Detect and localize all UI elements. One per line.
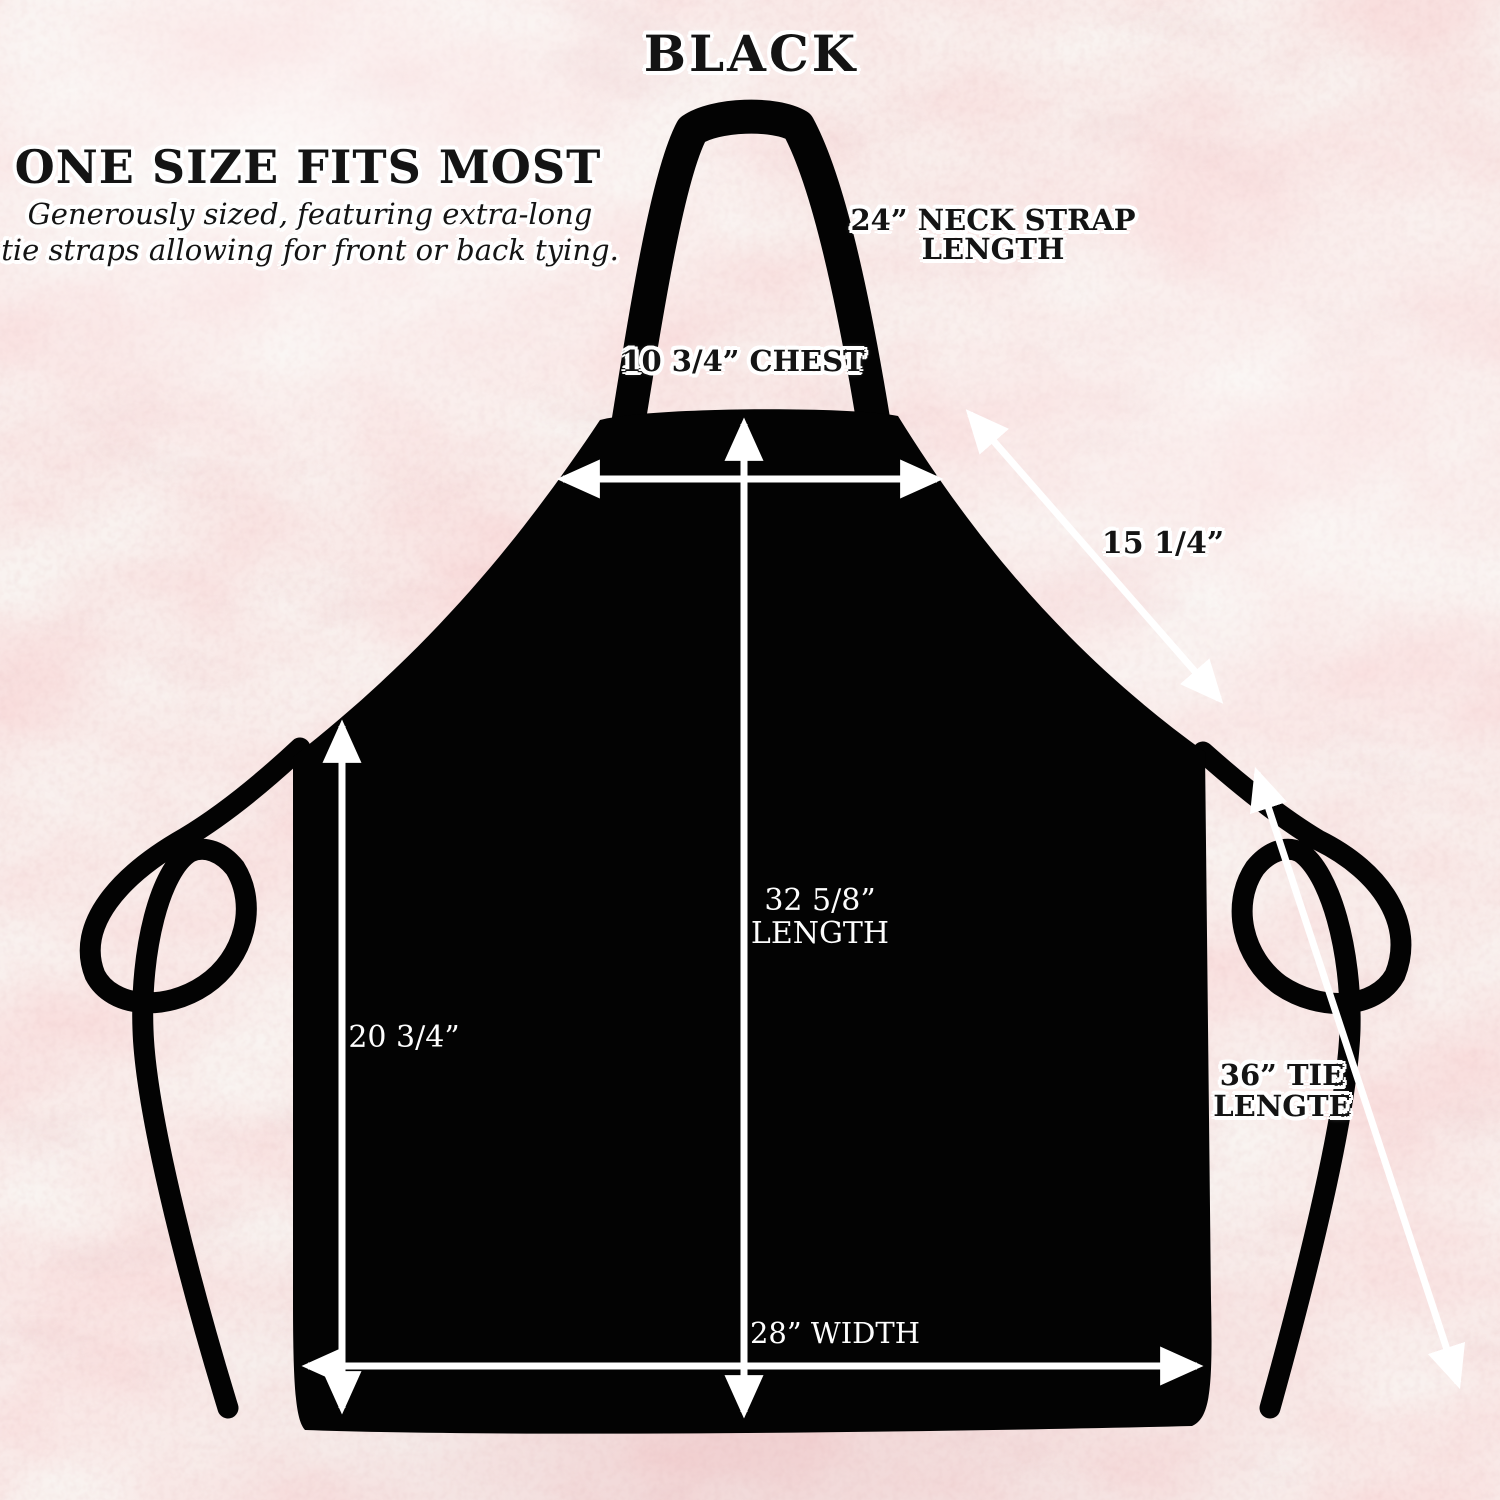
subtitle-line-1: Generously sized, featuring extra-long (28, 197, 593, 231)
length-measurement: 32 5/8” LENGTH (751, 884, 889, 950)
left-tie-strap (90, 748, 300, 1408)
tie-line-1: 36” TIE (1220, 1058, 1344, 1092)
one-size-subtitle: Generously sized, featuring extra-long t… (1, 196, 619, 268)
width-measurement: 28” WIDTH (750, 1316, 920, 1350)
length-line-2: LENGTH (751, 916, 889, 951)
shoulder-diagonal-measurement: 15 1/4” (1102, 526, 1224, 561)
apron-size-chart: BLACK ONE SIZE FITS MOST Generously size… (0, 0, 1500, 1500)
tie-line-2: LENGTE (1213, 1089, 1350, 1123)
neck-strap-measurement: 24” NECK STRAP LENGTH (850, 206, 1135, 264)
color-title: BLACK (644, 24, 858, 83)
subtitle-line-2: tie straps allowing for front or back ty… (1, 233, 619, 267)
side-length-measurement: 20 3/4” (348, 1020, 459, 1055)
tie-length-measurement: 36” TIE LENGTE (1213, 1060, 1350, 1122)
one-size-heading: ONE SIZE FITS MOST (15, 140, 602, 194)
neck-strap (624, 117, 878, 450)
chest-measurement: 10 3/4” CHEST (621, 344, 864, 378)
neck-strap-line-2: LENGTH (922, 232, 1065, 266)
length-line-1: 32 5/8” (764, 883, 875, 918)
